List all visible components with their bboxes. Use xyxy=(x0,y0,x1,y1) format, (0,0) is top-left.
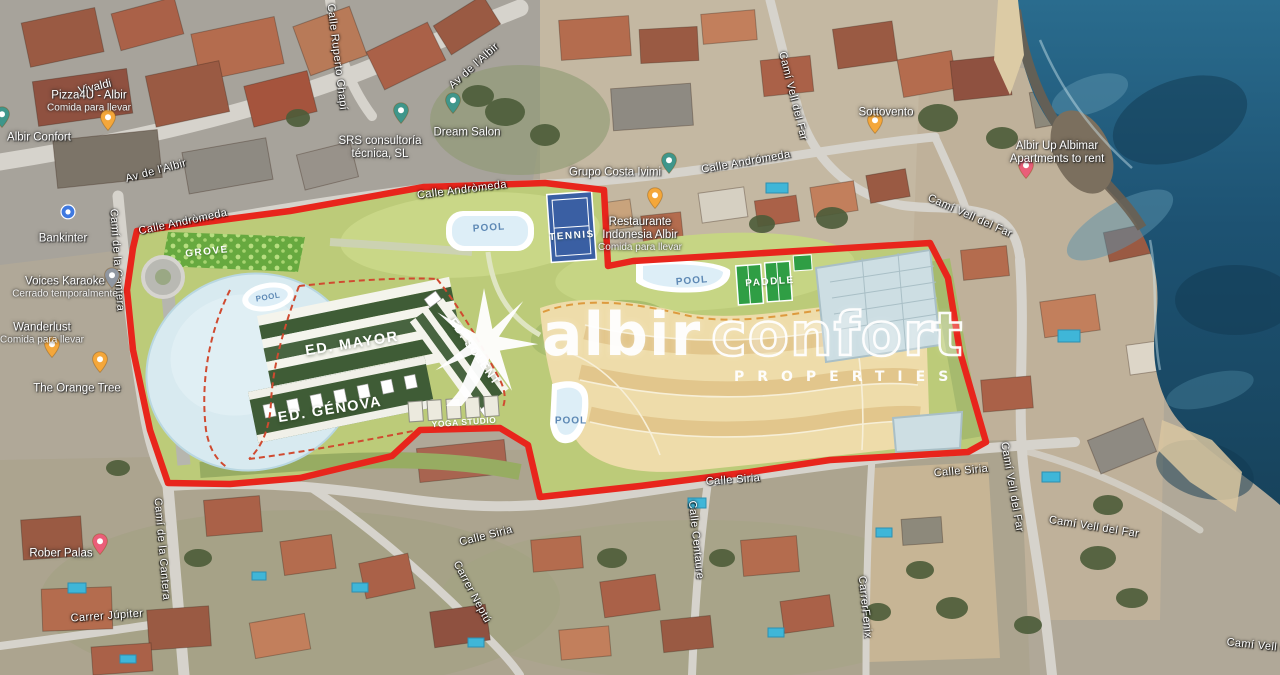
poi-label-line: Grupo Costa Ivimi xyxy=(569,166,661,179)
lodging-pin-icon[interactable] xyxy=(92,533,108,560)
poi-label-line: Comida para llevar xyxy=(47,103,131,115)
poi-label-line: Pizza4U - Albir xyxy=(47,90,131,103)
poi-label-line: Restaurante xyxy=(598,216,682,229)
poi-label-line: Voices Karaoke xyxy=(12,276,118,289)
satellite-map-image xyxy=(0,0,1280,675)
poi-label-line: The Orange Tree xyxy=(33,382,121,395)
poi-label-line: Cerrado temporalmente xyxy=(12,289,118,301)
poi-label-line: Bankinter xyxy=(39,232,88,245)
poi-the-orange-tree[interactable]: The Orange Tree xyxy=(33,382,121,395)
business-pin-icon[interactable] xyxy=(0,106,10,133)
poi-label-line: Rober Palas xyxy=(29,547,92,560)
poi-label-line: Dream Salon xyxy=(433,126,500,139)
poi-label-line: SRS consultoría xyxy=(338,135,421,148)
poi-label-line: Albir Confort xyxy=(7,131,71,144)
map-canvas[interactable]: Av de l'AlbirAv de l'AlbirCalle Ruperto … xyxy=(0,0,1280,675)
poi-wanderlust[interactable]: WanderlustComida para llevar xyxy=(0,322,84,347)
poi-bankinter[interactable]: Bankinter xyxy=(39,232,88,245)
poi-label-line: Apartments to rent xyxy=(1010,153,1105,166)
poi-label-line: Sottovento xyxy=(859,106,914,119)
poi-label-line: Indonesia Albir xyxy=(598,229,682,242)
poi-restaurante-indonesia-albir[interactable]: RestauranteIndonesia AlbirComida para ll… xyxy=(598,216,682,254)
poi-pizza4u-albir[interactable]: Pizza4U - AlbirComida para llevar xyxy=(47,90,131,115)
poi-voices-karaoke[interactable]: Voices KaraokeCerrado temporalmente xyxy=(12,276,118,301)
bank-pin-icon[interactable] xyxy=(61,204,76,224)
poi-dream-salon[interactable]: Dream Salon xyxy=(433,126,500,139)
poi-albir-confort[interactable]: Albir Confort xyxy=(7,131,71,144)
plan-label-pool-north: POOL xyxy=(472,221,505,234)
business-pin-icon[interactable] xyxy=(661,152,677,179)
poi-sottovento[interactable]: Sottovento xyxy=(859,106,914,119)
poi-grupo-costa-ivimi[interactable]: Grupo Costa Ivimi xyxy=(569,166,661,179)
poi-label-line: Albir Up Albimar xyxy=(1010,140,1105,153)
business-pin-icon[interactable] xyxy=(393,102,409,129)
plan-label-pool-south: POOL xyxy=(555,416,587,427)
poi-label-line: Comida para llevar xyxy=(598,242,682,254)
poi-label-line: Comida para llevar xyxy=(0,335,84,347)
poi-label-line: Wanderlust xyxy=(0,322,84,335)
poi-srs-consultoria[interactable]: SRS consultoríatécnica, SL xyxy=(338,135,421,161)
restaurant-pin-icon[interactable] xyxy=(647,187,663,214)
poi-label-line: técnica, SL xyxy=(338,148,421,161)
poi-albir-up-albimar[interactable]: Albir Up AlbimarApartments to rent xyxy=(1010,140,1105,166)
poi-rober-palas[interactable]: Rober Palas xyxy=(29,547,92,560)
restaurant-pin-icon[interactable] xyxy=(92,351,108,378)
business-pin-icon[interactable] xyxy=(445,92,461,119)
